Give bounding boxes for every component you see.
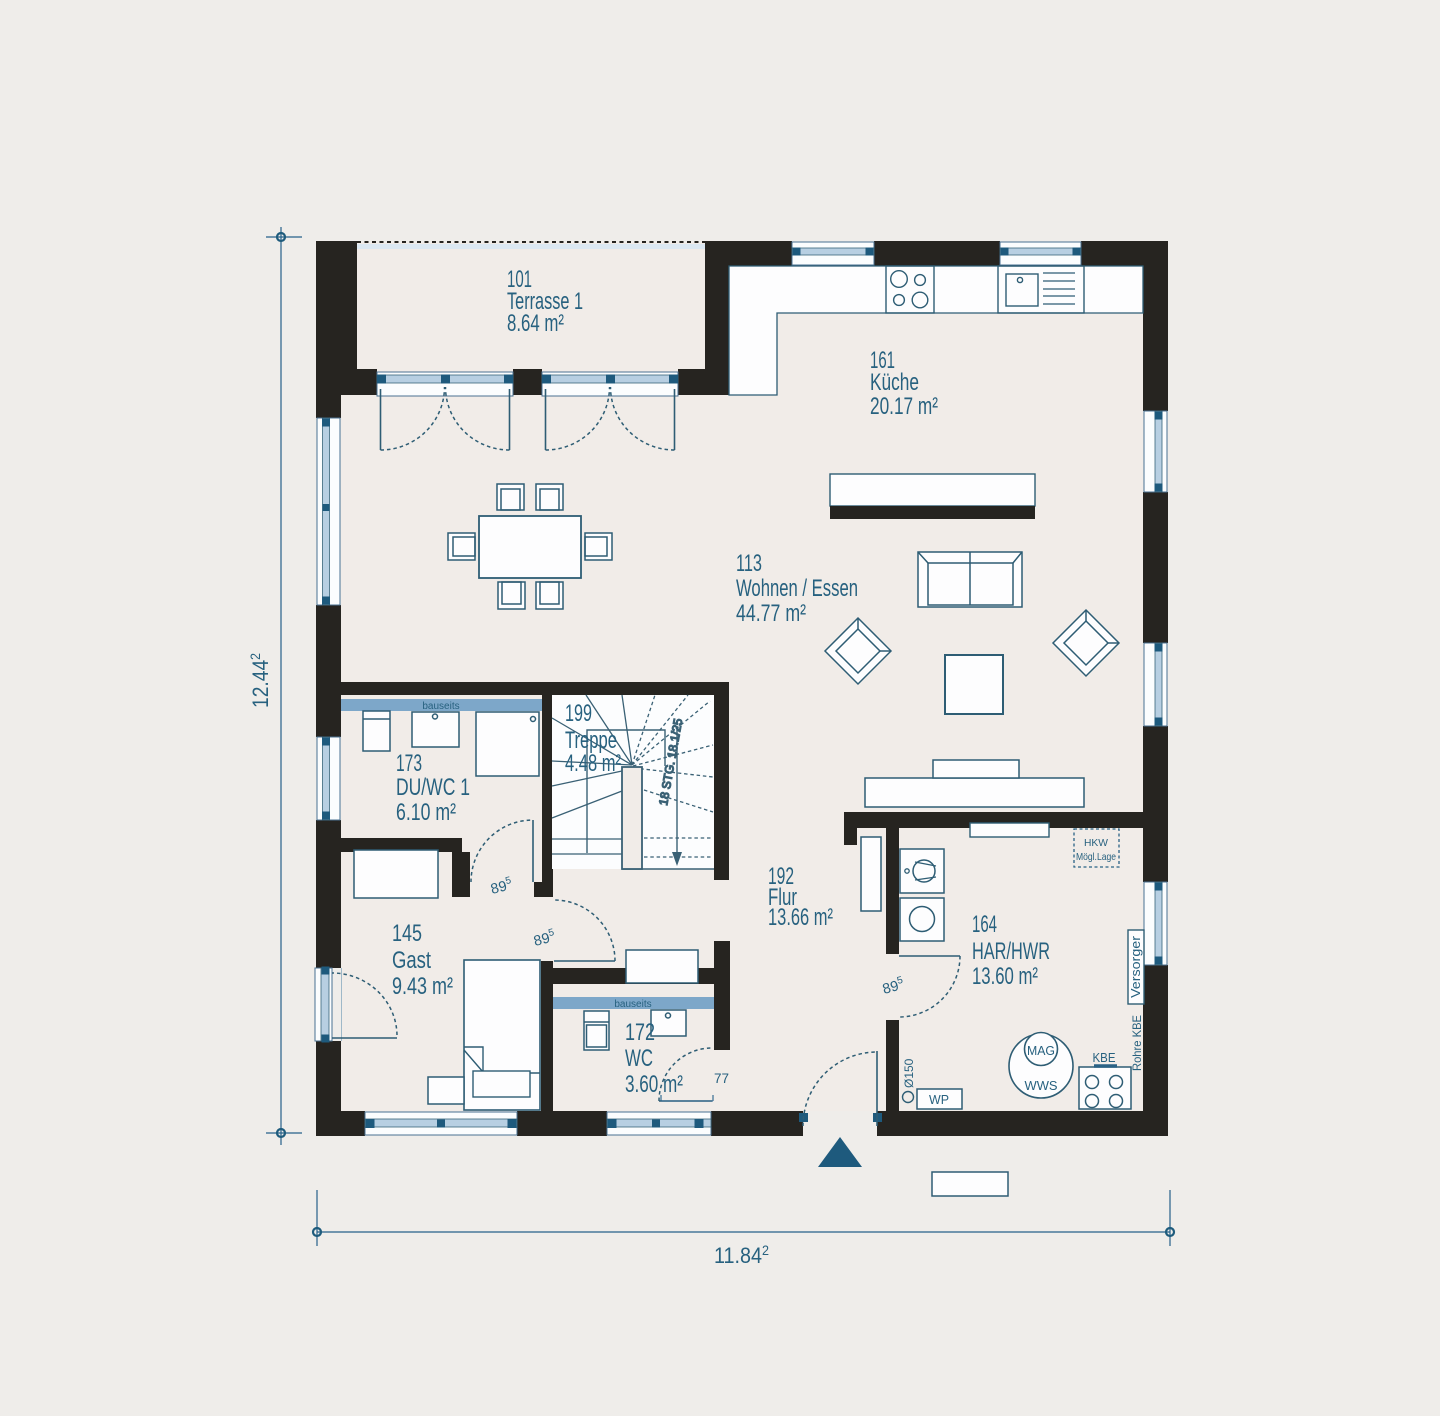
svg-text:KBE: KBE (1093, 1050, 1116, 1065)
svg-text:11.842: 11.842 (714, 1242, 769, 1268)
svg-text:HKW: HKW (1084, 837, 1108, 849)
svg-text:164: 164 (972, 911, 997, 938)
svg-text:3.60 m²: 3.60 m² (625, 1071, 683, 1098)
svg-text:8.64 m²: 8.64 m² (507, 310, 564, 337)
svg-text:HAR/HWR: HAR/HWR (972, 938, 1050, 965)
svg-text:113: 113 (736, 550, 762, 577)
svg-text:MAG: MAG (1027, 1043, 1055, 1058)
svg-text:bauseits: bauseits (422, 701, 459, 712)
svg-text:77: 77 (714, 1071, 729, 1086)
svg-text:6.10 m²: 6.10 m² (396, 799, 456, 826)
svg-text:44.77 m²: 44.77 m² (736, 600, 806, 627)
svg-text:Versorger: Versorger (1129, 936, 1143, 998)
svg-text:WC: WC (625, 1045, 653, 1072)
svg-text:Wohnen / Essen: Wohnen / Essen (736, 575, 858, 602)
svg-text:DU/WC 1: DU/WC 1 (396, 774, 470, 801)
svg-text:20.17 m²: 20.17 m² (870, 393, 938, 420)
svg-text:Gast: Gast (392, 947, 431, 974)
svg-text:4.48 m²: 4.48 m² (565, 750, 621, 777)
svg-text:145: 145 (392, 920, 422, 947)
svg-text:WWS: WWS (1025, 1078, 1058, 1093)
svg-text:173: 173 (396, 750, 422, 777)
svg-text:13.66 m²: 13.66 m² (768, 904, 833, 931)
svg-text:Mögl.Lage: Mögl.Lage (1076, 851, 1116, 863)
svg-text:WP: WP (929, 1092, 949, 1107)
svg-text:bauseits: bauseits (614, 999, 651, 1010)
svg-text:Küche: Küche (870, 369, 919, 396)
svg-text:199: 199 (565, 700, 592, 727)
svg-text:9.43 m²: 9.43 m² (392, 973, 453, 1000)
svg-text:13.60 m²: 13.60 m² (972, 963, 1038, 990)
svg-text:Rohre KBE: Rohre KBE (1130, 1015, 1144, 1071)
svg-text:172: 172 (625, 1019, 655, 1046)
svg-text:12.442: 12.442 (247, 653, 273, 708)
svg-text:Ø150: Ø150 (902, 1058, 916, 1088)
